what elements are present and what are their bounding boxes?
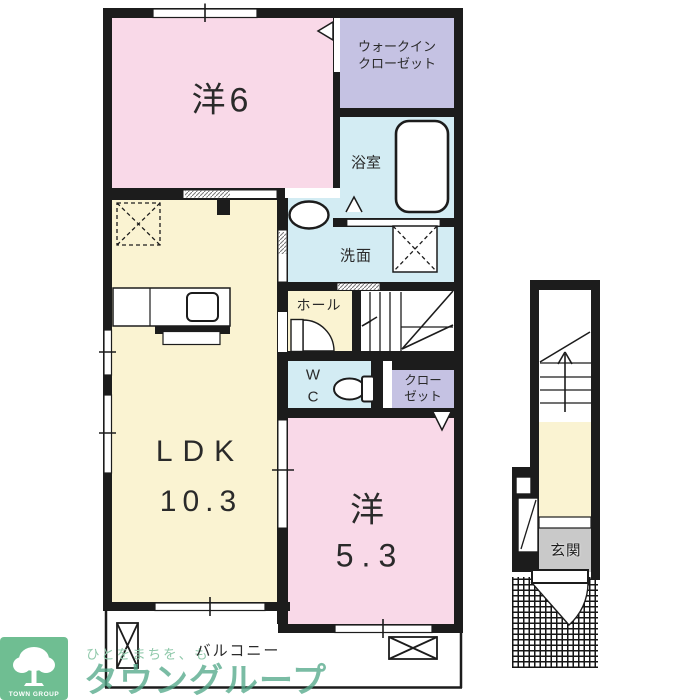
- label-ldk-size: 10.3: [160, 485, 242, 519]
- wall-row-408: [277, 408, 463, 418]
- wall-top: [103, 8, 463, 18]
- room-wc-floor: [286, 361, 383, 408]
- label-wc: W C: [306, 364, 320, 408]
- stairs-external-floor: [539, 290, 591, 422]
- wall-wc-right: [371, 361, 383, 408]
- label-closet-line2: ゼット: [404, 389, 442, 403]
- wall-ldk-bottom: [103, 602, 290, 611]
- town-group-logo: TOWN GROUP: [0, 637, 68, 700]
- label-wc-line2: C: [308, 388, 319, 405]
- wall-stairs-bottom: [277, 351, 463, 361]
- floor-plan: 洋6 ウォークイン クローゼット 浴室 洗面 ホール W C クロー ゼット L…: [0, 0, 700, 700]
- logo-text: TOWN GROUP: [0, 691, 68, 698]
- wall-closet-top: [392, 361, 463, 370]
- wall-right: [454, 8, 463, 633]
- wall-bath-bottom: [333, 218, 454, 227]
- wall-wic-bath: [333, 108, 454, 117]
- label-western53: 洋: [350, 483, 384, 532]
- wall-western6-wic: [333, 17, 340, 188]
- wall-entrance-top: [530, 280, 600, 290]
- entrance-porch-tiles: [512, 577, 598, 668]
- label-closet-line1: クロー: [404, 373, 442, 387]
- watermark-brand: タウングループ: [84, 653, 327, 700]
- wall-western6-ldk: [103, 188, 285, 200]
- wall-entrance-right: [591, 280, 600, 580]
- wall-left: [103, 8, 112, 611]
- wall-western53-bottom: [278, 624, 463, 633]
- label-wc-line1: W: [306, 366, 320, 383]
- label-closet: クロー ゼット: [404, 373, 442, 404]
- wall-entrance-left: [530, 280, 539, 470]
- label-bath: 浴室: [351, 152, 381, 173]
- wall-stub: [217, 200, 230, 215]
- label-wic-line1: ウォークイン: [358, 39, 436, 54]
- label-western53-size: 5.3: [336, 538, 404, 575]
- wall-entrance-protrusion: [512, 467, 539, 572]
- wall-washroom-bottom: [277, 282, 463, 291]
- label-ldk: LDK: [156, 435, 244, 469]
- label-western6: 洋6: [192, 73, 253, 122]
- label-walkin-closet: ウォークイン クローゼット: [358, 39, 436, 73]
- entrance-corridor-floor: [539, 422, 591, 517]
- label-hall: ホール: [297, 295, 342, 315]
- wall-hall-stairs: [352, 291, 361, 352]
- label-wic-line2: クローゼット: [358, 56, 436, 71]
- entrance-step-icon: [539, 517, 591, 528]
- room-ldk-floor: [112, 200, 277, 602]
- label-washroom: 洗面: [340, 245, 372, 266]
- stairs-internal-floor: [361, 291, 454, 352]
- label-genkan: 玄関: [551, 540, 582, 561]
